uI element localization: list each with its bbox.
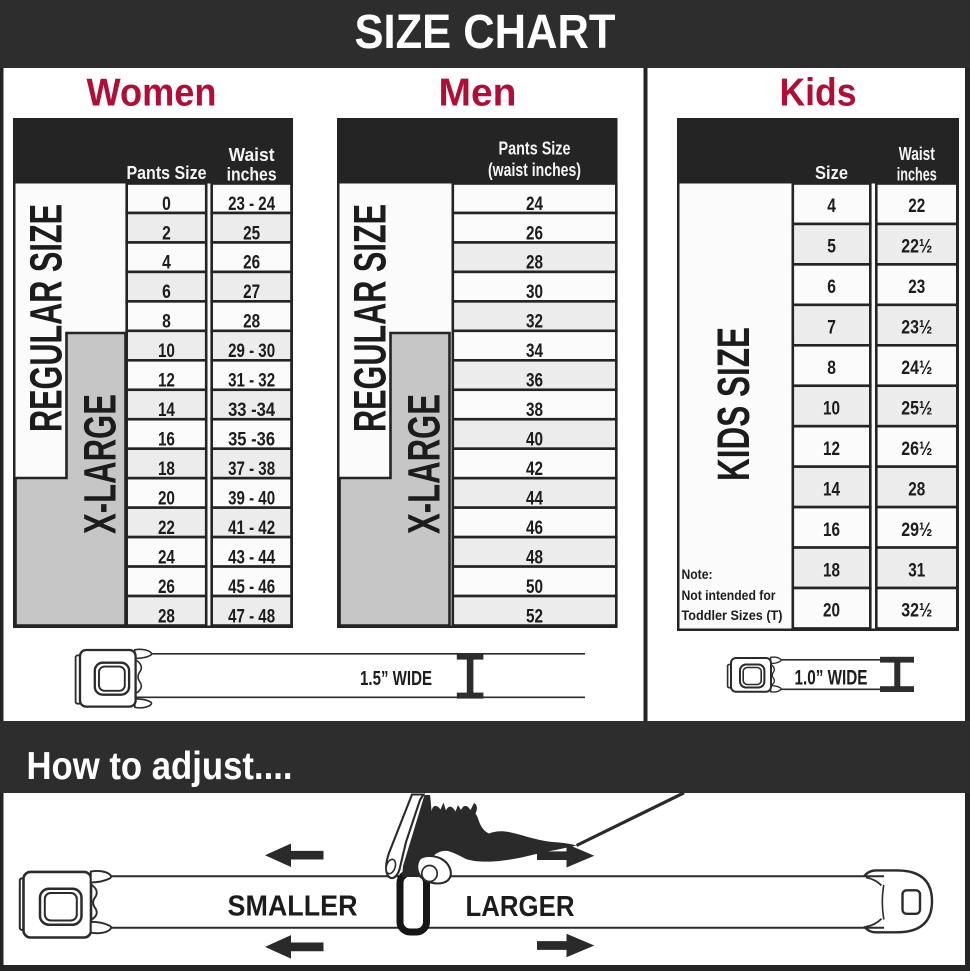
- svg-text:23 - 24: 23 - 24: [228, 193, 275, 215]
- svg-text:SIZE CHART: SIZE CHART: [355, 6, 616, 59]
- svg-text:41 - 42: 41 - 42: [228, 517, 275, 539]
- svg-text:26½: 26½: [901, 438, 932, 460]
- svg-text:12: 12: [823, 438, 840, 460]
- svg-text:5: 5: [827, 236, 836, 258]
- svg-text:28: 28: [158, 605, 175, 627]
- svg-text:8: 8: [827, 357, 836, 379]
- svg-text:LARGER: LARGER: [466, 891, 575, 923]
- svg-text:45 - 46: 45 - 46: [228, 576, 275, 598]
- svg-text:26: 26: [526, 222, 543, 244]
- svg-text:inches: inches: [897, 164, 937, 185]
- svg-text:14: 14: [823, 478, 840, 500]
- svg-text:16: 16: [158, 429, 175, 451]
- svg-text:(waist inches): (waist inches): [488, 159, 581, 180]
- svg-text:23: 23: [908, 276, 925, 298]
- svg-text:Pants Size: Pants Size: [127, 162, 207, 183]
- svg-text:X-LARGE: X-LARGE: [399, 394, 450, 534]
- svg-text:20: 20: [823, 600, 840, 622]
- svg-text:22: 22: [158, 517, 175, 539]
- svg-text:4: 4: [827, 195, 836, 217]
- svg-text:How to adjust....: How to adjust....: [27, 745, 293, 788]
- svg-text:28: 28: [908, 478, 925, 500]
- svg-text:31: 31: [908, 559, 925, 581]
- svg-text:KIDS SIZE: KIDS SIZE: [708, 327, 759, 481]
- svg-text:REGULAR SIZE: REGULAR SIZE: [20, 204, 71, 432]
- svg-text:29 - 30: 29 - 30: [228, 340, 275, 362]
- svg-text:20: 20: [158, 487, 175, 509]
- svg-text:26: 26: [243, 252, 260, 274]
- svg-text:14: 14: [158, 399, 175, 421]
- svg-text:28: 28: [243, 311, 260, 333]
- svg-text:REGULAR SIZE: REGULAR SIZE: [344, 204, 395, 432]
- svg-text:4: 4: [162, 252, 171, 274]
- svg-text:36: 36: [526, 370, 543, 392]
- svg-text:25½: 25½: [901, 397, 932, 419]
- svg-text:35 -36: 35 -36: [228, 429, 275, 451]
- svg-text:22: 22: [908, 195, 925, 217]
- svg-text:48: 48: [526, 546, 543, 568]
- svg-text:8: 8: [162, 311, 171, 333]
- svg-text:0: 0: [162, 193, 171, 215]
- svg-text:34: 34: [526, 340, 543, 362]
- svg-text:29½: 29½: [901, 519, 932, 541]
- svg-text:10: 10: [158, 340, 175, 362]
- svg-text:24: 24: [526, 193, 543, 215]
- svg-text:Men: Men: [439, 72, 517, 115]
- svg-text:28: 28: [526, 252, 543, 274]
- svg-text:1.0” WIDE: 1.0” WIDE: [795, 666, 868, 690]
- svg-text:16: 16: [823, 519, 840, 541]
- svg-text:12: 12: [158, 370, 175, 392]
- svg-text:SMALLER: SMALLER: [228, 891, 358, 923]
- svg-text:52: 52: [526, 605, 543, 627]
- svg-text:X-LARGE: X-LARGE: [75, 394, 126, 534]
- svg-text:Note:: Note:: [682, 566, 713, 582]
- svg-text:18: 18: [158, 458, 175, 480]
- svg-text:32½: 32½: [901, 600, 932, 622]
- svg-text:Kids: Kids: [780, 72, 857, 115]
- svg-text:6: 6: [162, 281, 171, 303]
- svg-text:30: 30: [526, 281, 543, 303]
- svg-text:32: 32: [526, 311, 543, 333]
- svg-text:Pants Size: Pants Size: [499, 138, 571, 159]
- svg-text:22½: 22½: [901, 236, 932, 258]
- svg-text:37 - 38: 37 - 38: [228, 458, 275, 480]
- svg-text:26: 26: [158, 576, 175, 598]
- svg-text:Waist: Waist: [229, 144, 275, 165]
- svg-text:33 -34: 33 -34: [228, 399, 275, 421]
- svg-text:23½: 23½: [901, 317, 932, 339]
- svg-text:40: 40: [526, 429, 543, 451]
- svg-text:46: 46: [526, 517, 543, 539]
- svg-text:18: 18: [823, 559, 840, 581]
- svg-text:1.5” WIDE: 1.5” WIDE: [360, 668, 432, 690]
- svg-text:24½: 24½: [901, 357, 932, 379]
- svg-text:43 - 44: 43 - 44: [228, 546, 275, 568]
- svg-text:inches: inches: [227, 164, 277, 185]
- svg-text:25: 25: [243, 222, 260, 244]
- svg-text:27: 27: [243, 281, 260, 303]
- svg-text:38: 38: [526, 399, 543, 421]
- svg-text:50: 50: [526, 576, 543, 598]
- svg-text:2: 2: [162, 222, 171, 244]
- svg-text:Not intended for: Not intended for: [682, 587, 776, 603]
- svg-text:7: 7: [827, 317, 836, 339]
- svg-text:Size: Size: [815, 162, 848, 183]
- svg-text:Toddler Sizes (T): Toddler Sizes (T): [682, 607, 783, 623]
- svg-text:Women: Women: [87, 72, 217, 115]
- svg-text:47 - 48: 47 - 48: [228, 605, 275, 627]
- svg-text:24: 24: [158, 546, 175, 568]
- svg-text:44: 44: [526, 487, 543, 509]
- svg-text:42: 42: [526, 458, 543, 480]
- svg-text:10: 10: [823, 397, 840, 419]
- svg-text:39 - 40: 39 - 40: [228, 487, 275, 509]
- svg-text:Waist: Waist: [899, 143, 935, 164]
- svg-text:31 - 32: 31 - 32: [228, 370, 275, 392]
- svg-text:6: 6: [827, 276, 836, 298]
